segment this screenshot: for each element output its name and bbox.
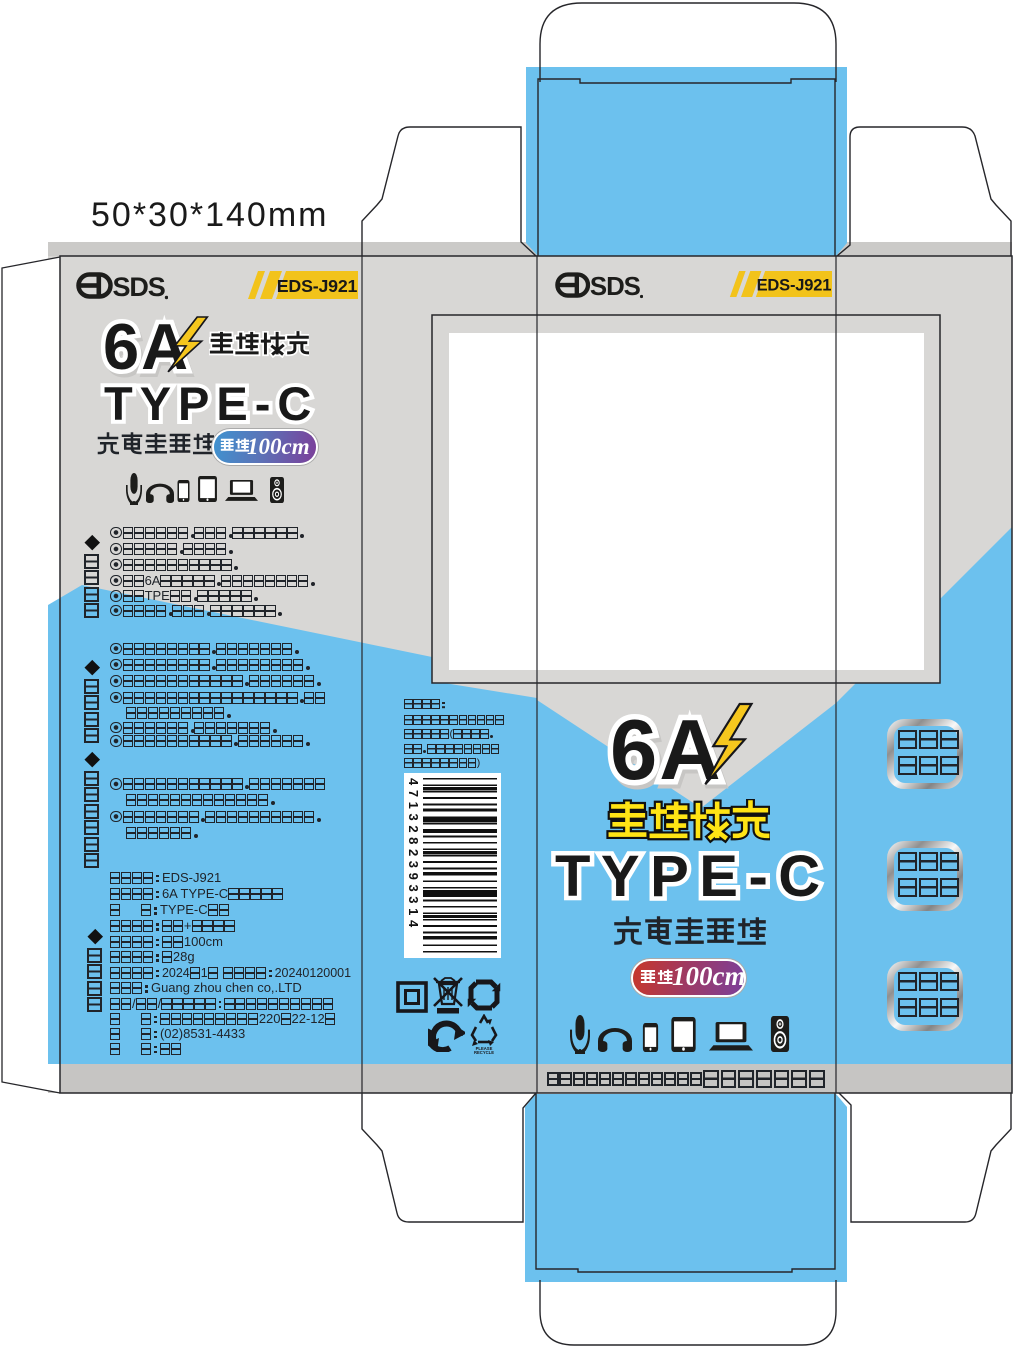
svg-text:RECYCLE: RECYCLE: [474, 1050, 494, 1054]
svg-text:TYPE-C: TYPE-C: [104, 378, 318, 428]
svg-text:EDS-J921: EDS-J921: [277, 276, 358, 296]
svg-text:TYPE-C: TYPE-C: [555, 844, 829, 908]
svg-text:EDS-J921: EDS-J921: [757, 276, 832, 295]
svg-text:SDS: SDS: [113, 272, 165, 300]
svg-text:SDS: SDS: [590, 273, 641, 299]
